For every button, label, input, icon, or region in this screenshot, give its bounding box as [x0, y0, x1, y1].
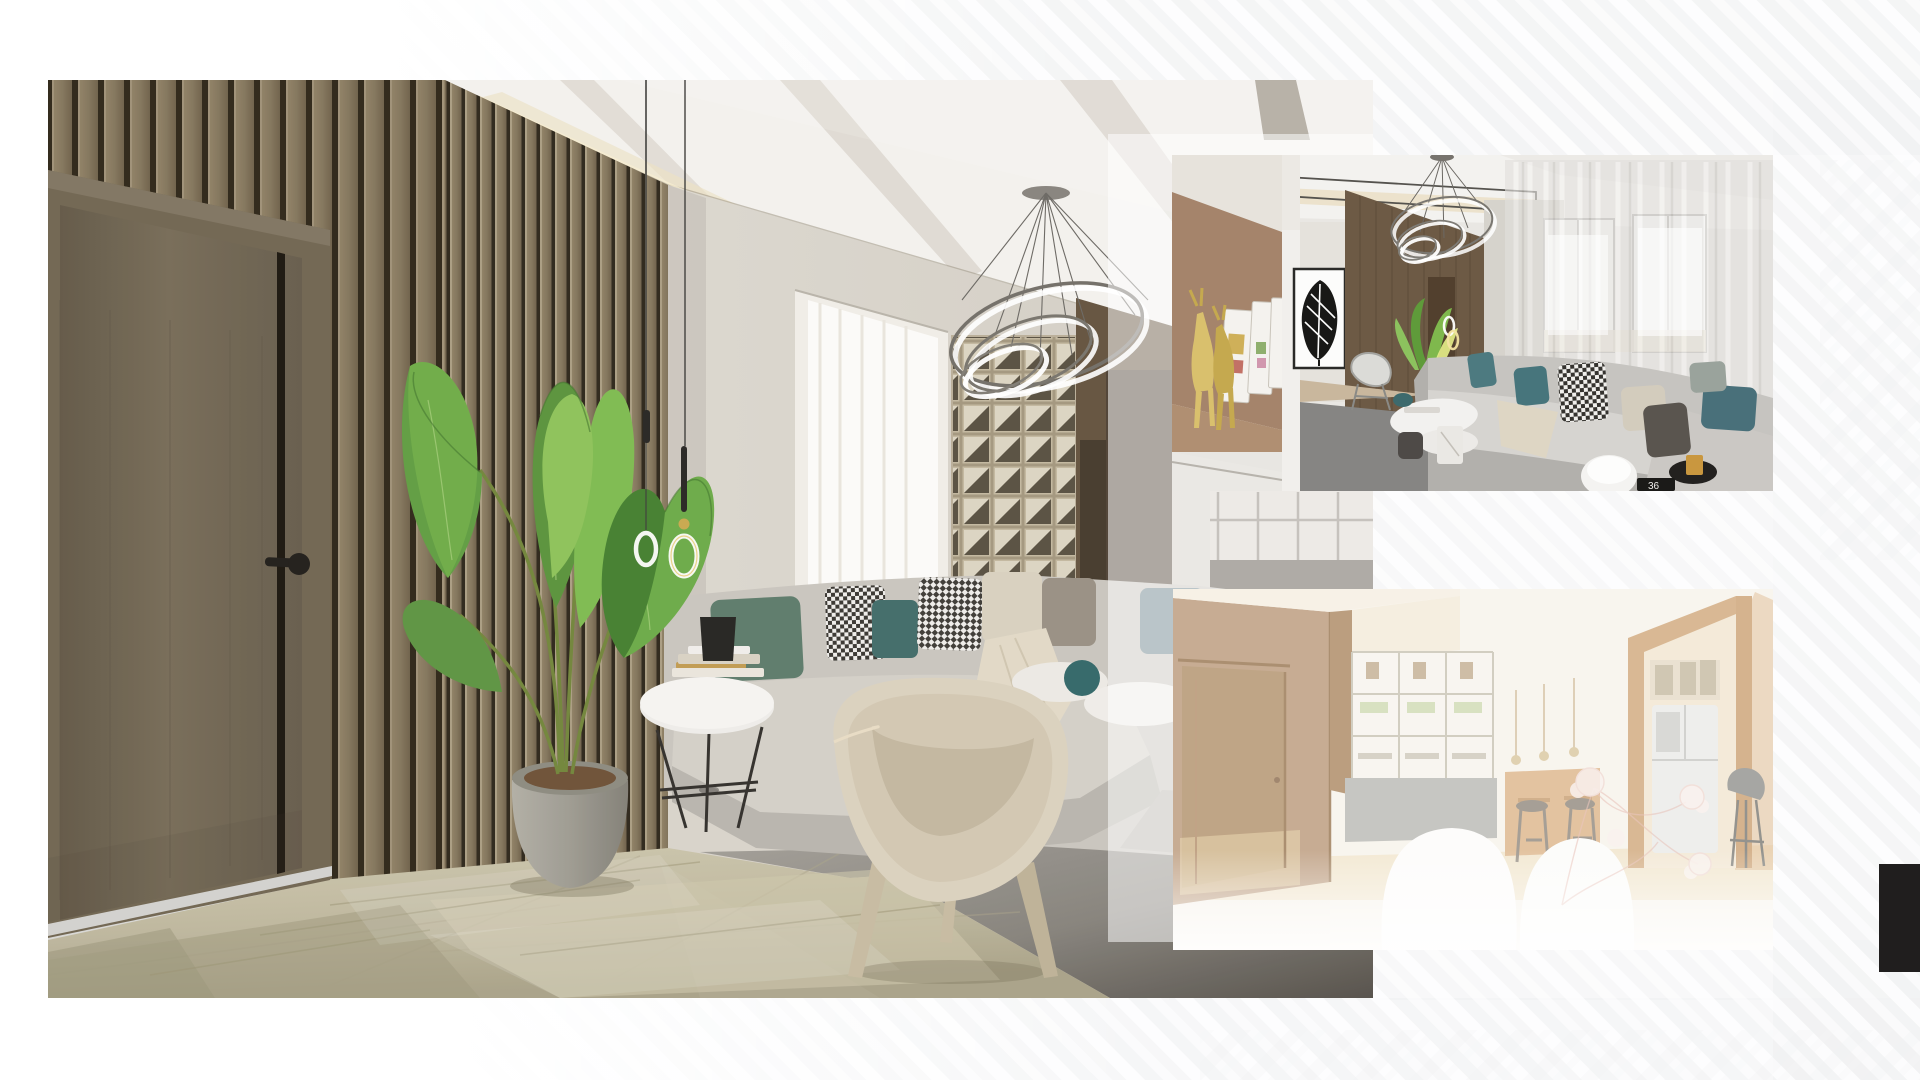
svg-text:36: 36 — [1648, 481, 1660, 492]
